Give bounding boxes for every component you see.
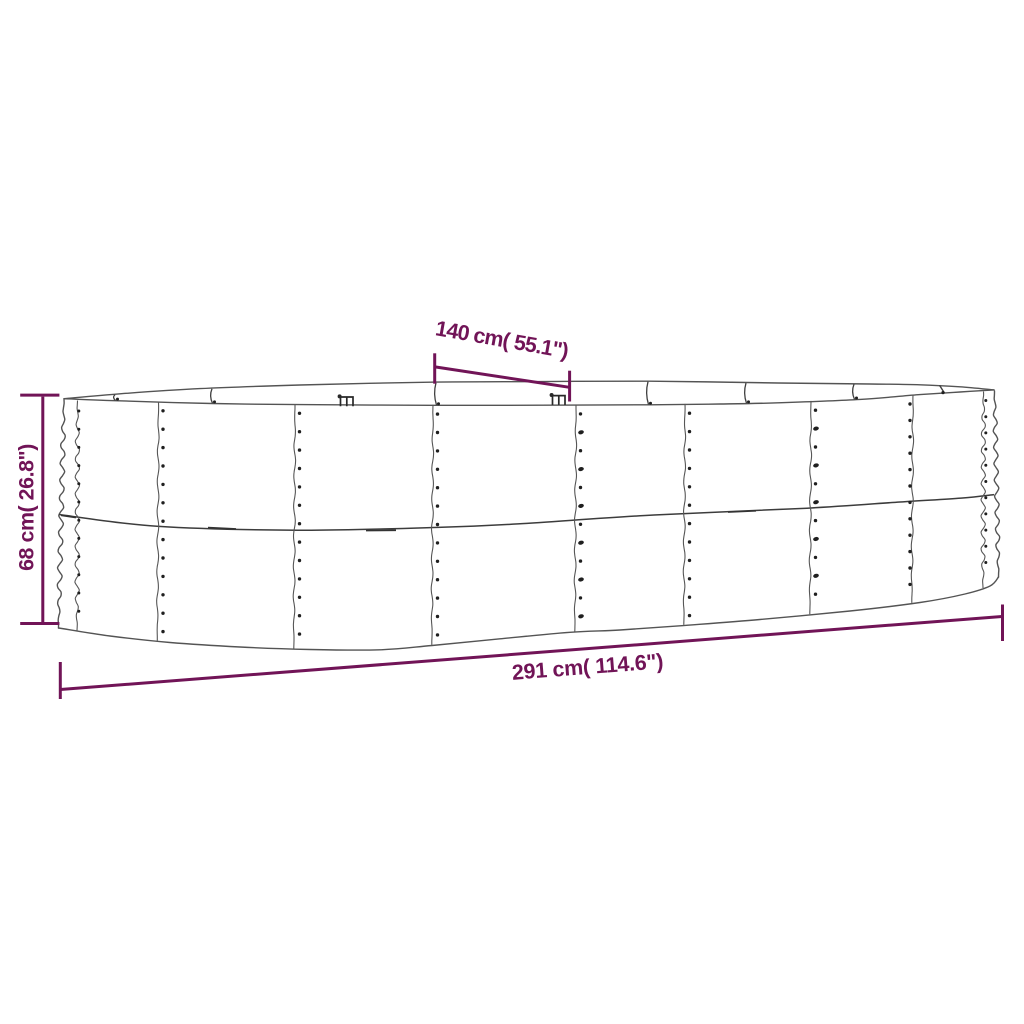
svg-text:68 cm( 26.8"): 68 cm( 26.8") [15, 444, 39, 571]
